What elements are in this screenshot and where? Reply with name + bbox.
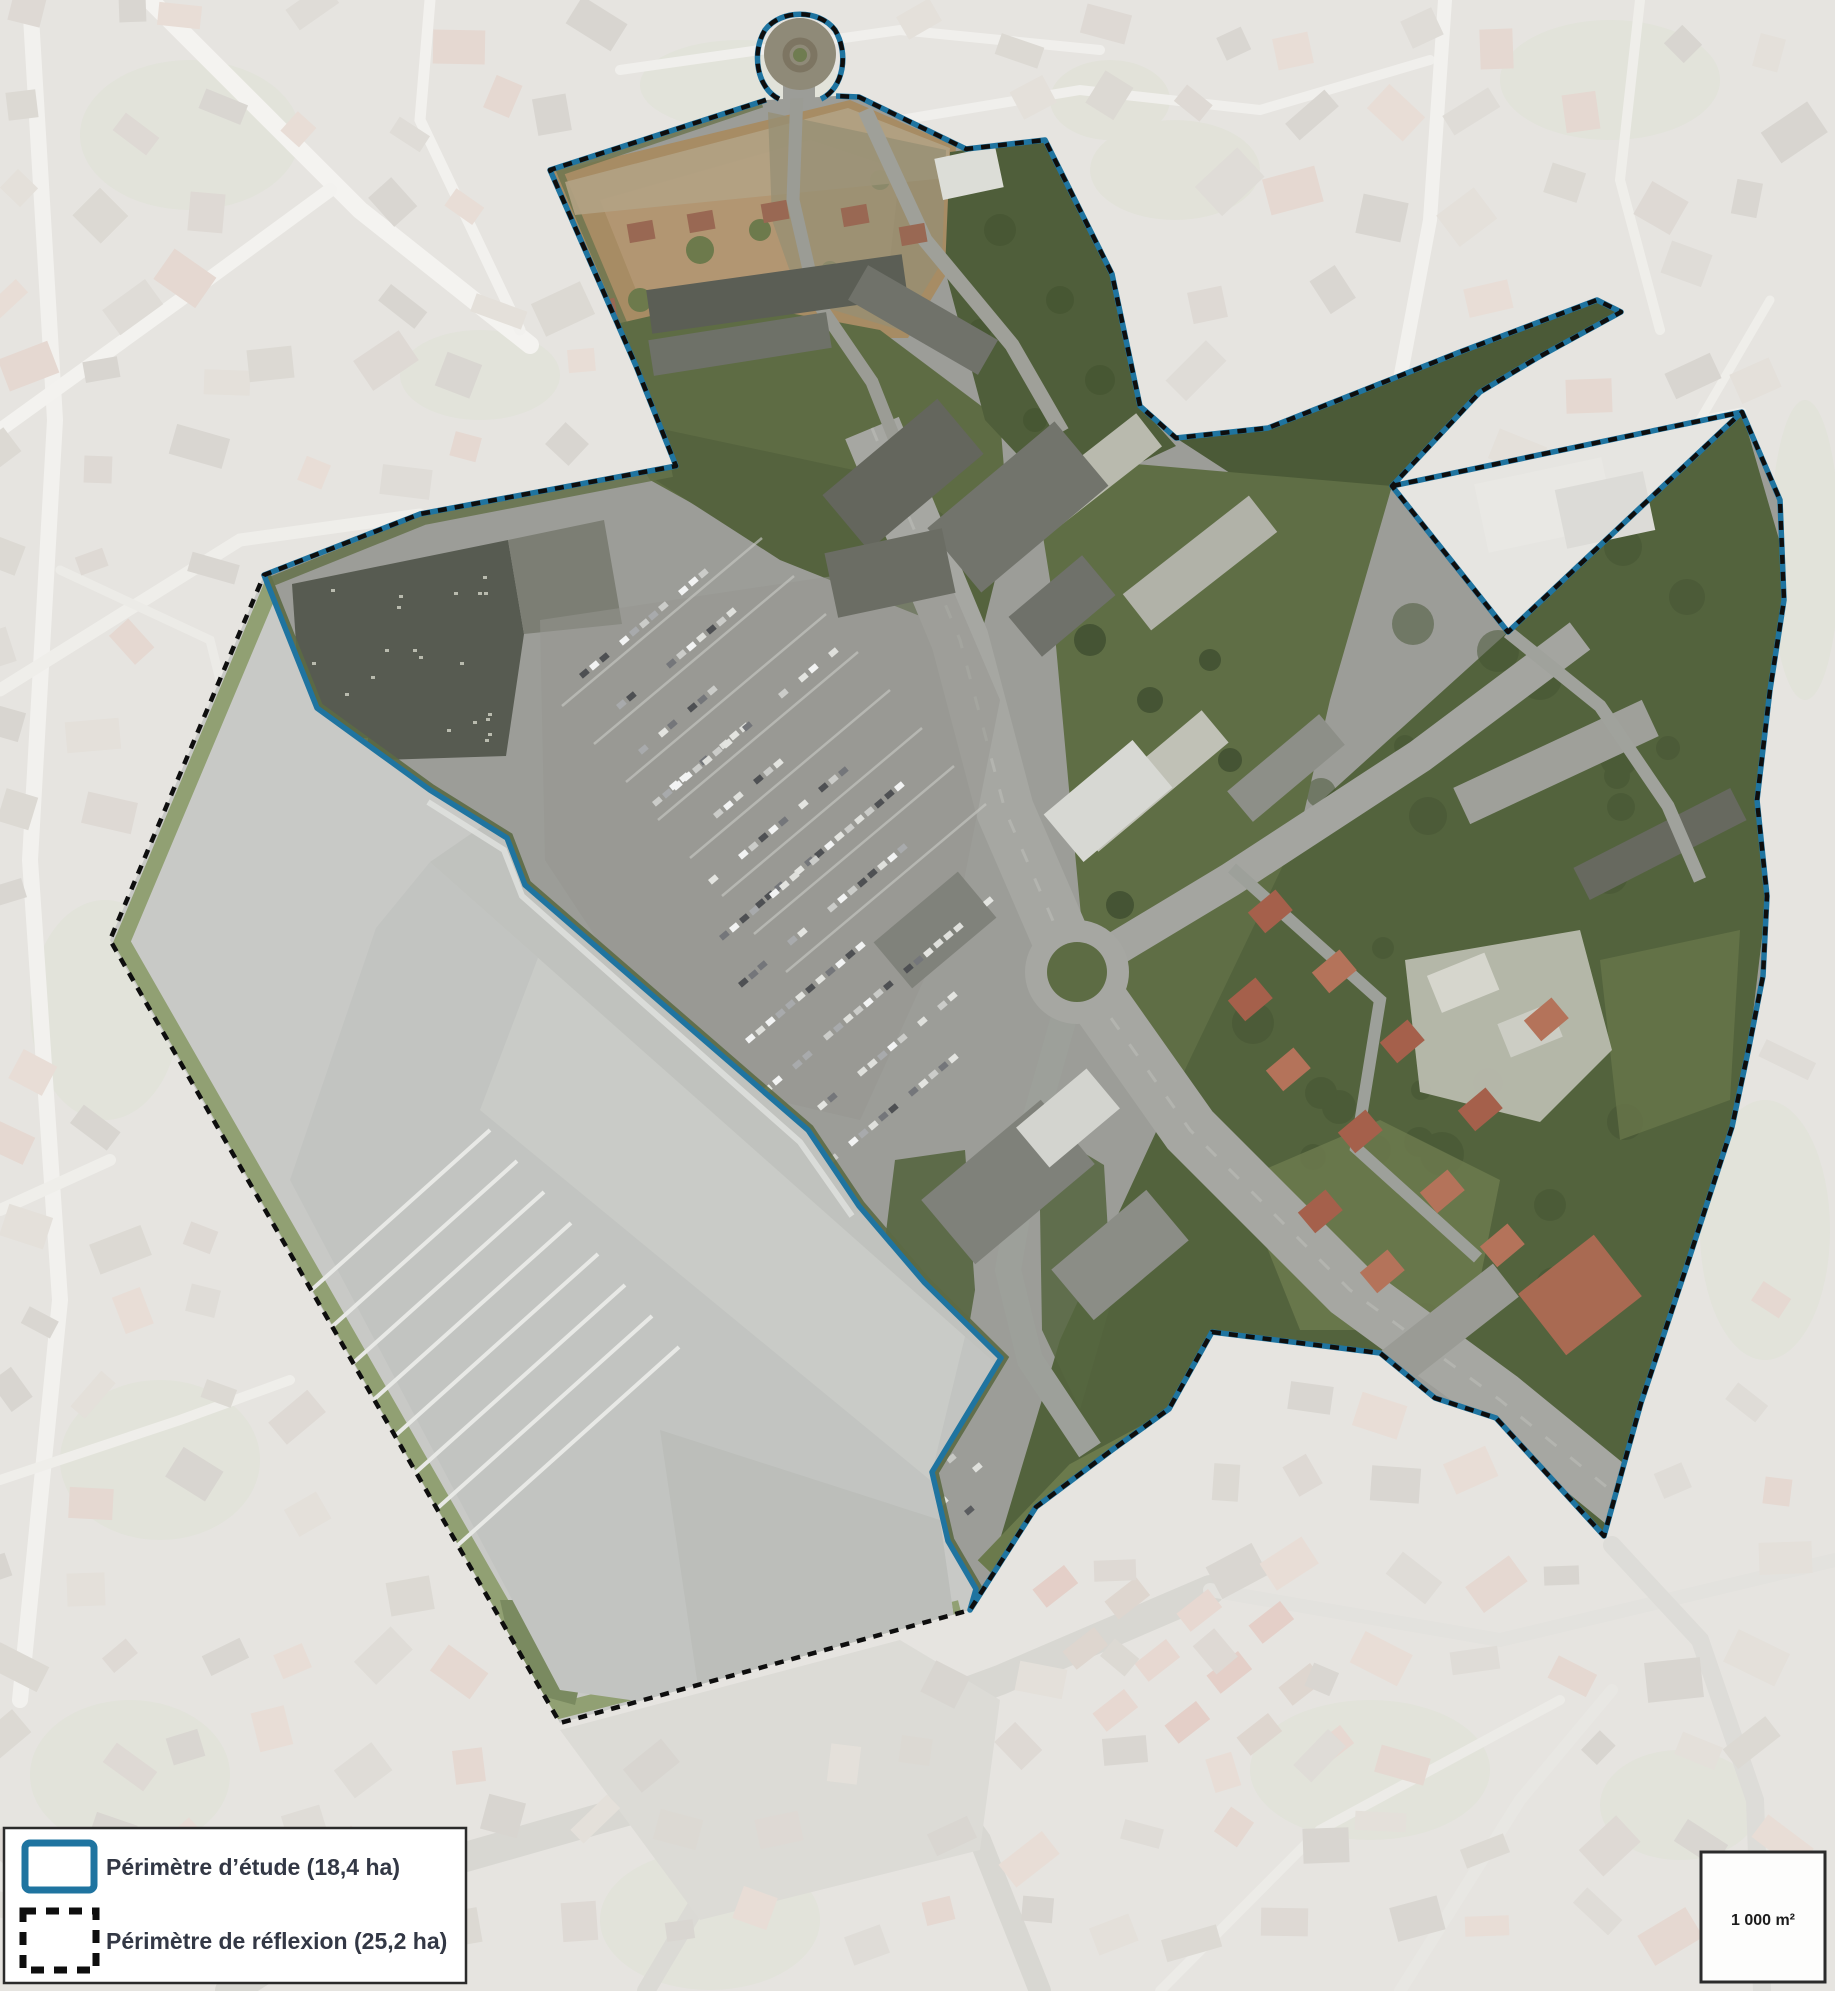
svg-text:Périmètre de réflexion (25,2 h: Périmètre de réflexion (25,2 ha) <box>106 1928 447 1954</box>
svg-text:1 000 m²: 1 000 m² <box>1731 1912 1795 1929</box>
svg-text:Périmètre d’étude (18,4 ha): Périmètre d’étude (18,4 ha) <box>106 1854 400 1880</box>
